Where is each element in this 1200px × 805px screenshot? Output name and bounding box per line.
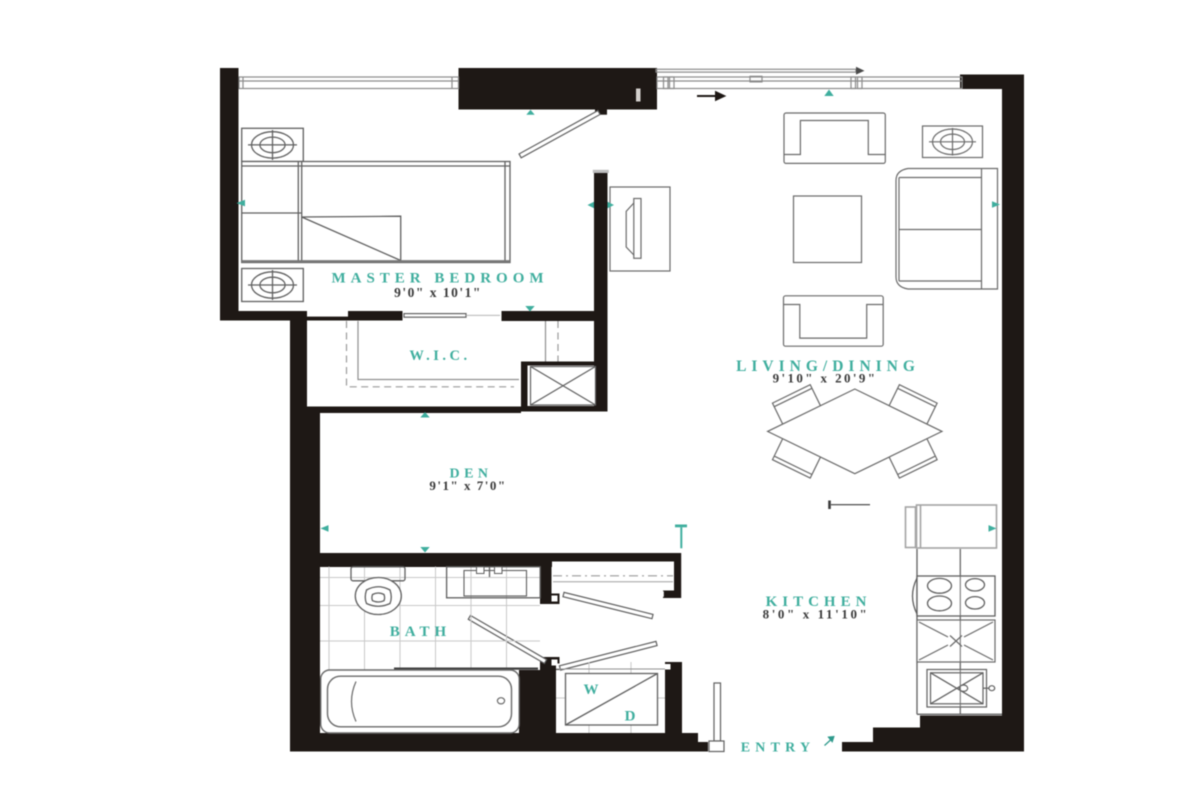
svg-text:W: W xyxy=(584,682,599,698)
svg-text:8'0" x 11'10": 8'0" x 11'10" xyxy=(763,607,870,622)
svg-text:9'1" x 7'0": 9'1" x 7'0" xyxy=(429,478,506,493)
svg-text:W.I.C.: W.I.C. xyxy=(409,348,470,364)
svg-text:ENTRY: ENTRY xyxy=(741,741,816,756)
svg-text:9'0" x 10'1": 9'0" x 10'1" xyxy=(394,285,482,300)
svg-text:D: D xyxy=(625,709,636,725)
svg-text:9'10" x 20'9": 9'10" x 20'9" xyxy=(773,371,878,386)
svg-text:BATH: BATH xyxy=(390,624,451,640)
